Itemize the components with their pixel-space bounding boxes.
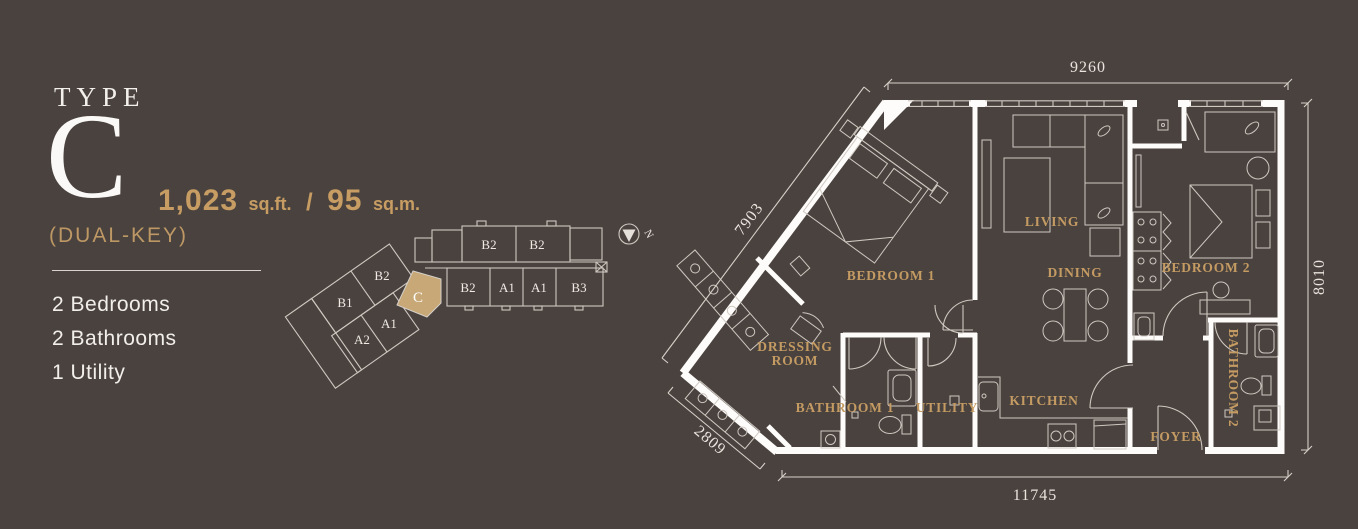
- room-label-utility: UTILITY: [916, 400, 979, 415]
- room-label-bedroom2: BEDROOM 2: [1162, 260, 1251, 275]
- room-label-bathroom1: BATHROOM 1: [796, 400, 895, 415]
- keyplan-label-b2-top1: B2: [481, 237, 496, 252]
- stool: [790, 256, 810, 276]
- furniture-bedroom1: [789, 118, 949, 344]
- dimension-upper-left: 7903: [732, 200, 767, 239]
- dimension-top: 9260: [1070, 59, 1106, 76]
- lift-icon: [596, 262, 607, 272]
- north-arrow-icon: N: [619, 224, 656, 244]
- furniture-living: [982, 115, 1123, 256]
- room-label-foyer: FOYER: [1150, 429, 1201, 444]
- furniture-dining: [1043, 289, 1108, 341]
- keyplan-label-b3: B3: [571, 280, 586, 295]
- keyplan-label-b2-top2: B2: [529, 237, 544, 252]
- key-plan-horizontal-wing: [415, 221, 607, 310]
- floorplan-canvas: N: [0, 0, 1358, 529]
- keyplan-label-a2-diag: A2: [354, 332, 370, 347]
- room-label-living: LIVING: [1025, 214, 1079, 229]
- keyplan-label-a1-bottom1: A1: [499, 280, 515, 295]
- windows: [908, 101, 1263, 107]
- room-label-bathroom2: BATHROOM 2: [1226, 329, 1241, 428]
- key-plan: B2 B2 B2 A1 A1 B3 B2 B1 A1 A2 C: [285, 221, 607, 388]
- keyplan-label-a1-bottom2: A1: [531, 280, 547, 295]
- keyplan-label-b1-diag: B1: [337, 295, 352, 310]
- store-room: [1158, 120, 1168, 130]
- room-label-kitchen: KITCHEN: [1009, 393, 1078, 408]
- room-label-dining: DINING: [1047, 265, 1102, 280]
- furniture-bedroom2: [1133, 112, 1275, 314]
- room-label-dressing-2: ROOM: [772, 353, 819, 368]
- dimension-bottom: 11745: [1013, 487, 1057, 504]
- room-label-dressing-1: DRESSING: [757, 339, 832, 354]
- north-letter: N: [641, 228, 655, 241]
- keyplan-label-b2-diag: B2: [374, 268, 389, 283]
- keyplan-label-b2-bottom: B2: [460, 280, 475, 295]
- furniture-kitchen: [978, 377, 1128, 449]
- room-label-bedroom1: BEDROOM 1: [847, 268, 936, 283]
- key-plan-diagonal-wing: [285, 244, 419, 388]
- main-floorplan: BEDROOM 1 DRESSING ROOM BATHROOM 1 UTILI…: [662, 59, 1328, 504]
- keyplan-label-c: C: [413, 290, 423, 306]
- dimension-right: 8010: [1311, 259, 1328, 295]
- keyplan-label-a1-diag: A1: [381, 316, 397, 331]
- corner-pillar: [884, 100, 914, 130]
